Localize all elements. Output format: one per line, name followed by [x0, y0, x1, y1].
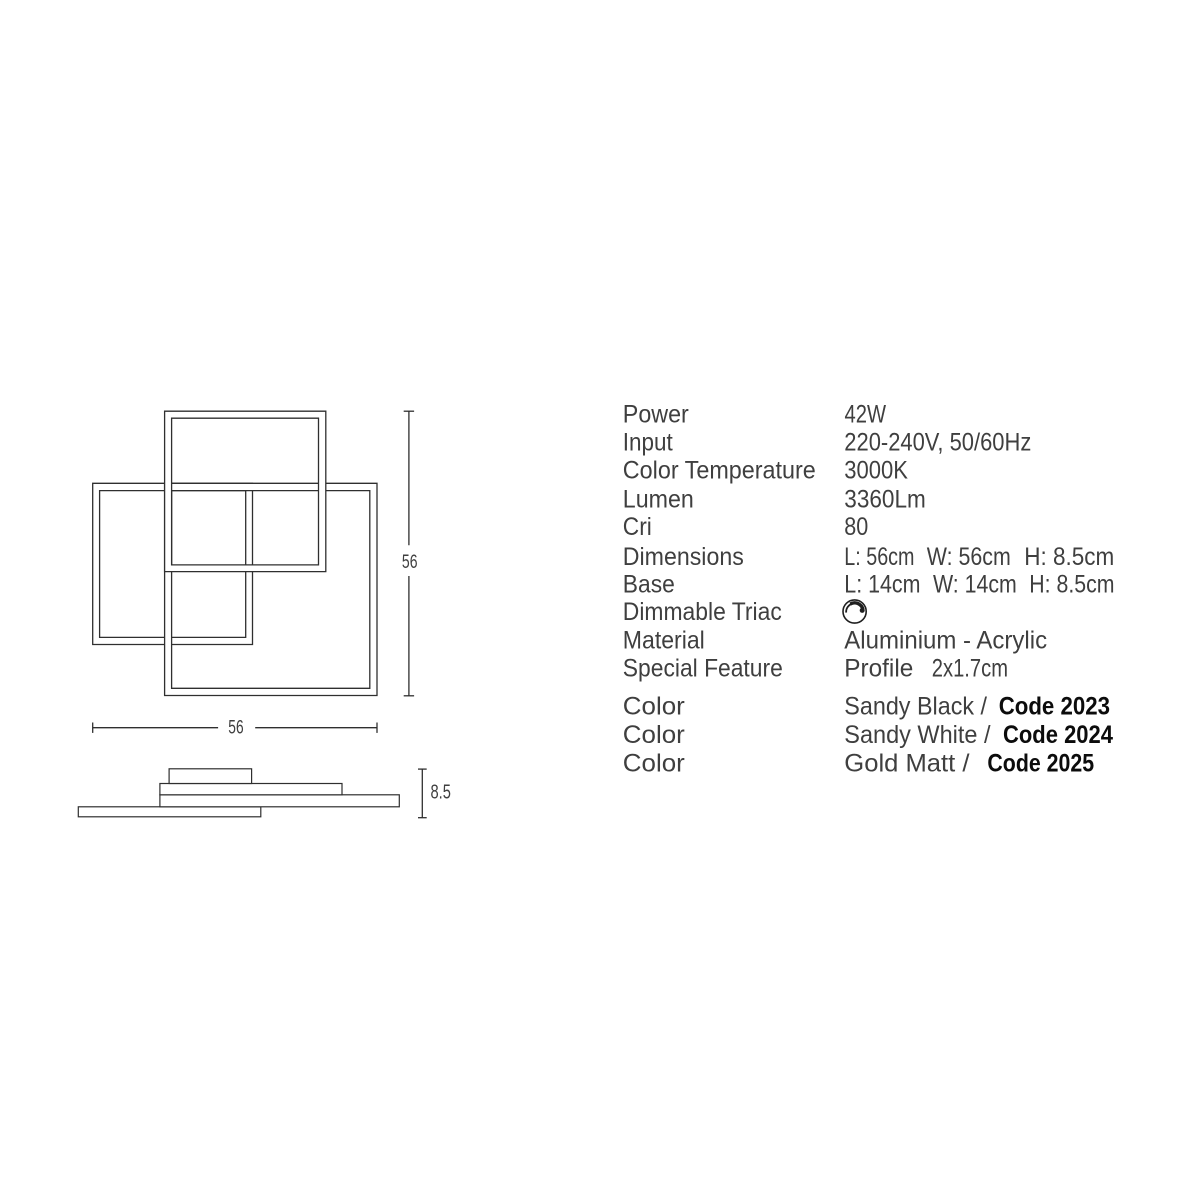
svg-text:H: 8.5cm: H: 8.5cm — [1029, 571, 1114, 599]
svg-text:Sandy Black /: Sandy Black / — [844, 692, 987, 720]
svg-text:Input: Input — [623, 429, 673, 457]
svg-text:Profile: Profile — [844, 655, 913, 683]
svg-text:Material: Material — [623, 627, 705, 655]
svg-text:Dimensions: Dimensions — [623, 543, 744, 571]
svg-text:Power: Power — [623, 401, 689, 429]
svg-text:Code 2025: Code 2025 — [987, 749, 1094, 777]
svg-text:Color: Color — [623, 749, 685, 777]
svg-text:Code 2023: Code 2023 — [999, 692, 1110, 720]
svg-text:56: 56 — [402, 552, 418, 573]
svg-text:3000K: 3000K — [844, 456, 908, 484]
svg-text:L: 14cm: L: 14cm — [844, 571, 920, 599]
svg-text:Cri: Cri — [623, 513, 652, 541]
svg-text:Color Temperature: Color Temperature — [623, 456, 816, 484]
svg-text:W: 56cm: W: 56cm — [927, 543, 1011, 571]
svg-text:W: 14cm: W: 14cm — [933, 571, 1017, 599]
svg-text:Lumen: Lumen — [623, 486, 694, 514]
svg-text:Gold Matt /: Gold Matt / — [844, 749, 969, 777]
svg-text:42W: 42W — [845, 401, 887, 429]
svg-text:Dimmable Triac: Dimmable Triac — [623, 598, 782, 626]
svg-text:Aluminium - Acrylic: Aluminium - Acrylic — [844, 627, 1047, 655]
svg-text:Base: Base — [623, 571, 675, 599]
svg-text:56: 56 — [228, 718, 243, 739]
svg-text:Sandy White /: Sandy White / — [844, 721, 990, 749]
svg-text:8.5: 8.5 — [431, 782, 451, 804]
svg-text:80: 80 — [844, 513, 868, 541]
svg-text:2x1.7cm: 2x1.7cm — [932, 655, 1008, 683]
svg-text:L: 56cm: L: 56cm — [844, 543, 914, 571]
svg-text:Special Feature: Special Feature — [623, 655, 783, 683]
svg-text:3360Lm: 3360Lm — [844, 486, 926, 514]
svg-text:Color: Color — [623, 692, 685, 720]
svg-text:220-240V, 50/60Hz: 220-240V, 50/60Hz — [844, 429, 1031, 457]
svg-text:H: 8.5cm: H: 8.5cm — [1024, 543, 1114, 571]
svg-text:Color: Color — [623, 721, 685, 749]
svg-text:Code 2024: Code 2024 — [1003, 721, 1113, 749]
